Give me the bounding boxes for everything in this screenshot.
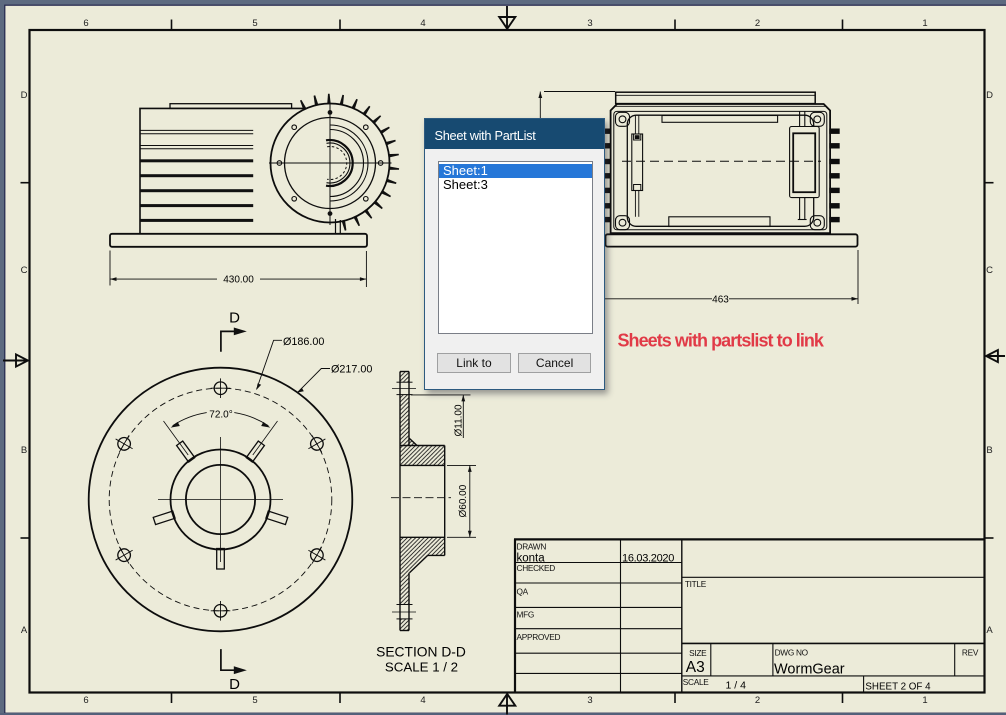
svg-text:A: A xyxy=(21,625,28,636)
svg-text:3: 3 xyxy=(587,18,592,29)
svg-text:REV: REV xyxy=(962,647,979,657)
svg-text:16.03.2020: 16.03.2020 xyxy=(622,552,674,564)
svg-text:TITLE: TITLE xyxy=(685,579,707,589)
svg-text:C: C xyxy=(986,265,993,276)
svg-text:1: 1 xyxy=(922,18,927,29)
svg-text:DWG NO: DWG NO xyxy=(775,647,809,657)
svg-text:4: 4 xyxy=(420,695,425,706)
svg-text:2: 2 xyxy=(755,18,760,29)
svg-text:6: 6 xyxy=(83,18,88,29)
svg-text:SECTION D-D: SECTION D-D xyxy=(376,645,466,660)
svg-text:DRAWN: DRAWN xyxy=(517,541,547,551)
svg-text:MFG: MFG xyxy=(517,610,535,620)
svg-text:72.0°: 72.0° xyxy=(209,410,232,421)
svg-text:Ø11.00: Ø11.00 xyxy=(453,404,464,436)
svg-text:D: D xyxy=(986,90,993,101)
svg-text:Ø60.00: Ø60.00 xyxy=(458,484,469,517)
svg-text:Sheets with partslist to link: Sheets with partslist to link xyxy=(618,331,825,351)
svg-text:5: 5 xyxy=(252,695,257,706)
svg-text:APPROVED: APPROVED xyxy=(517,632,561,642)
svg-text:4: 4 xyxy=(420,18,425,29)
svg-text:SHEET 2 OF 4: SHEET 2 OF 4 xyxy=(865,682,931,693)
svg-text:3: 3 xyxy=(587,695,592,706)
svg-text:QA: QA xyxy=(517,587,529,597)
svg-text:Ø186.00: Ø186.00 xyxy=(283,336,324,348)
svg-text:1: 1 xyxy=(922,695,927,706)
svg-text:konta: konta xyxy=(517,552,546,564)
svg-text:B: B xyxy=(21,445,27,456)
svg-text:D: D xyxy=(21,90,28,101)
svg-text:A3: A3 xyxy=(686,659,705,676)
svg-text:5: 5 xyxy=(252,18,257,29)
svg-text:Ø217.00: Ø217.00 xyxy=(331,363,372,375)
svg-text:463: 463 xyxy=(712,295,729,306)
svg-text:B: B xyxy=(986,445,992,456)
svg-text:6: 6 xyxy=(83,695,88,706)
svg-text:A: A xyxy=(986,625,993,636)
svg-text:D: D xyxy=(229,676,240,693)
svg-text:2: 2 xyxy=(755,695,760,706)
svg-text:SCALE 1 / 2: SCALE 1 / 2 xyxy=(385,660,458,675)
svg-text:1 / 4: 1 / 4 xyxy=(726,679,747,691)
svg-text:C: C xyxy=(21,265,28,276)
svg-text:SIZE: SIZE xyxy=(689,648,707,658)
svg-text:SCALE: SCALE xyxy=(683,677,709,687)
svg-text:D: D xyxy=(229,310,240,327)
svg-text:WormGear: WormGear xyxy=(774,662,845,678)
svg-text:430.00: 430.00 xyxy=(223,275,254,286)
